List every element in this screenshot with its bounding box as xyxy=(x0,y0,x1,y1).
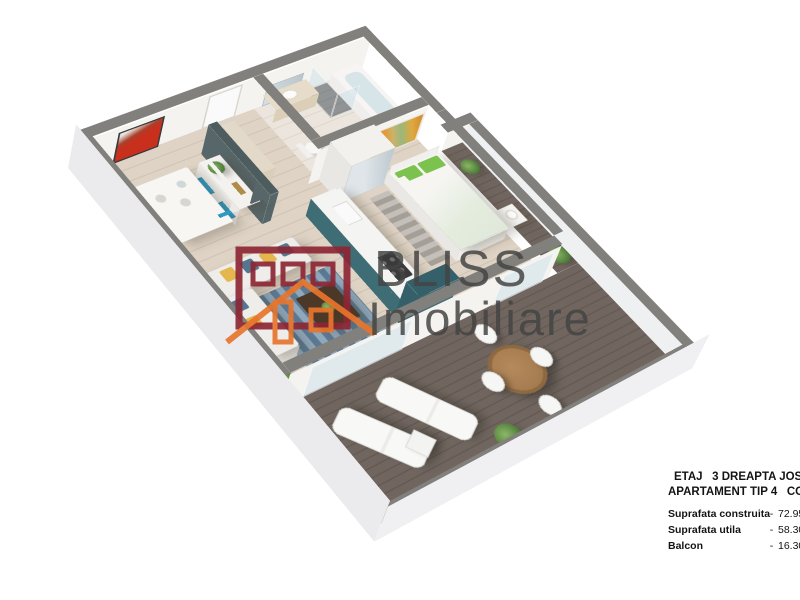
info-separator: - xyxy=(765,540,778,552)
info-separator: - xyxy=(765,524,778,536)
info-label: Balcon xyxy=(668,540,765,552)
apartment-info-panel: ETAJ 3 DREAPTA JOS APARTAMENT TIP 4 CORP… xyxy=(668,471,800,556)
info-row-balcony: Balcon - 16.30 m xyxy=(668,540,800,552)
info-row-built-area: Suprafata construita - 72.95 m xyxy=(668,508,800,520)
info-value: 16.30 m xyxy=(778,540,800,552)
info-label: Suprafata construita xyxy=(668,508,765,520)
info-value: 72.95 m xyxy=(778,508,800,520)
apartment-plan xyxy=(68,49,692,542)
info-title-apartment: APARTAMENT TIP 4 CORP C xyxy=(668,486,800,498)
floor-plan-render: BLISS Imobiliare ETAJ 3 DREAPTA JOS APAR… xyxy=(0,0,800,600)
info-label: Suprafata utila xyxy=(668,524,765,536)
info-value: 58.30 m xyxy=(778,524,800,536)
info-title-floor: ETAJ 3 DREAPTA JOS xyxy=(668,471,800,483)
info-separator: - xyxy=(765,508,778,520)
info-row-usable-area: Suprafata utila - 58.30 m xyxy=(668,524,800,536)
info-area-rows: Suprafata construita - 72.95 m Suprafata… xyxy=(668,508,800,552)
